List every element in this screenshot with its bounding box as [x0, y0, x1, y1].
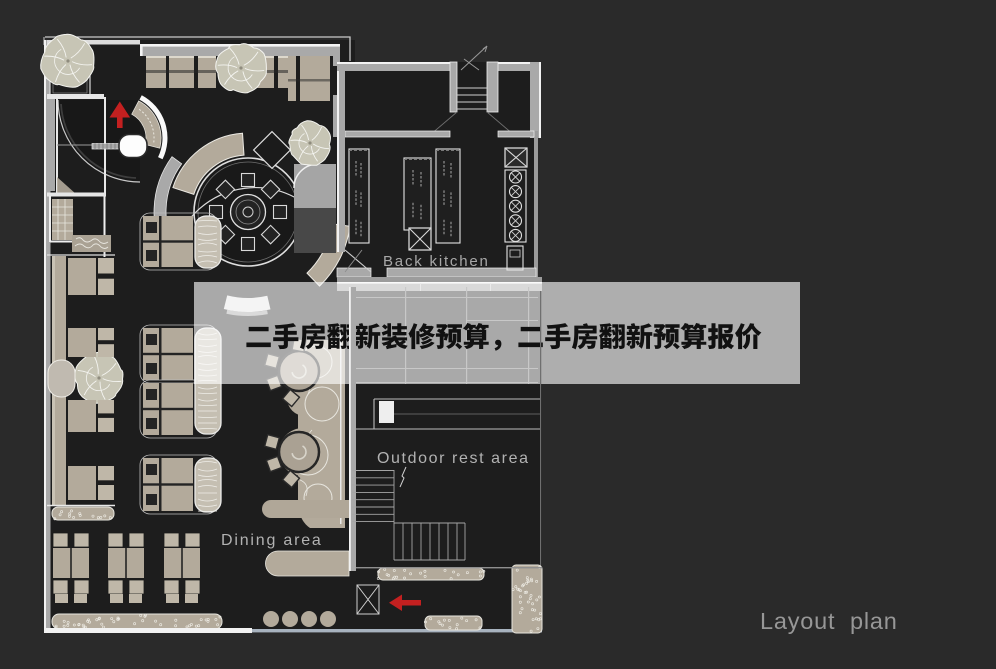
- svg-text:Back kitchen: Back kitchen: [383, 253, 490, 270]
- svg-text:Outdoor rest area: Outdoor rest area: [377, 450, 530, 467]
- svg-text:Dining area: Dining area: [221, 532, 323, 549]
- svg-text:Layout plan: Layout plan: [760, 608, 898, 634]
